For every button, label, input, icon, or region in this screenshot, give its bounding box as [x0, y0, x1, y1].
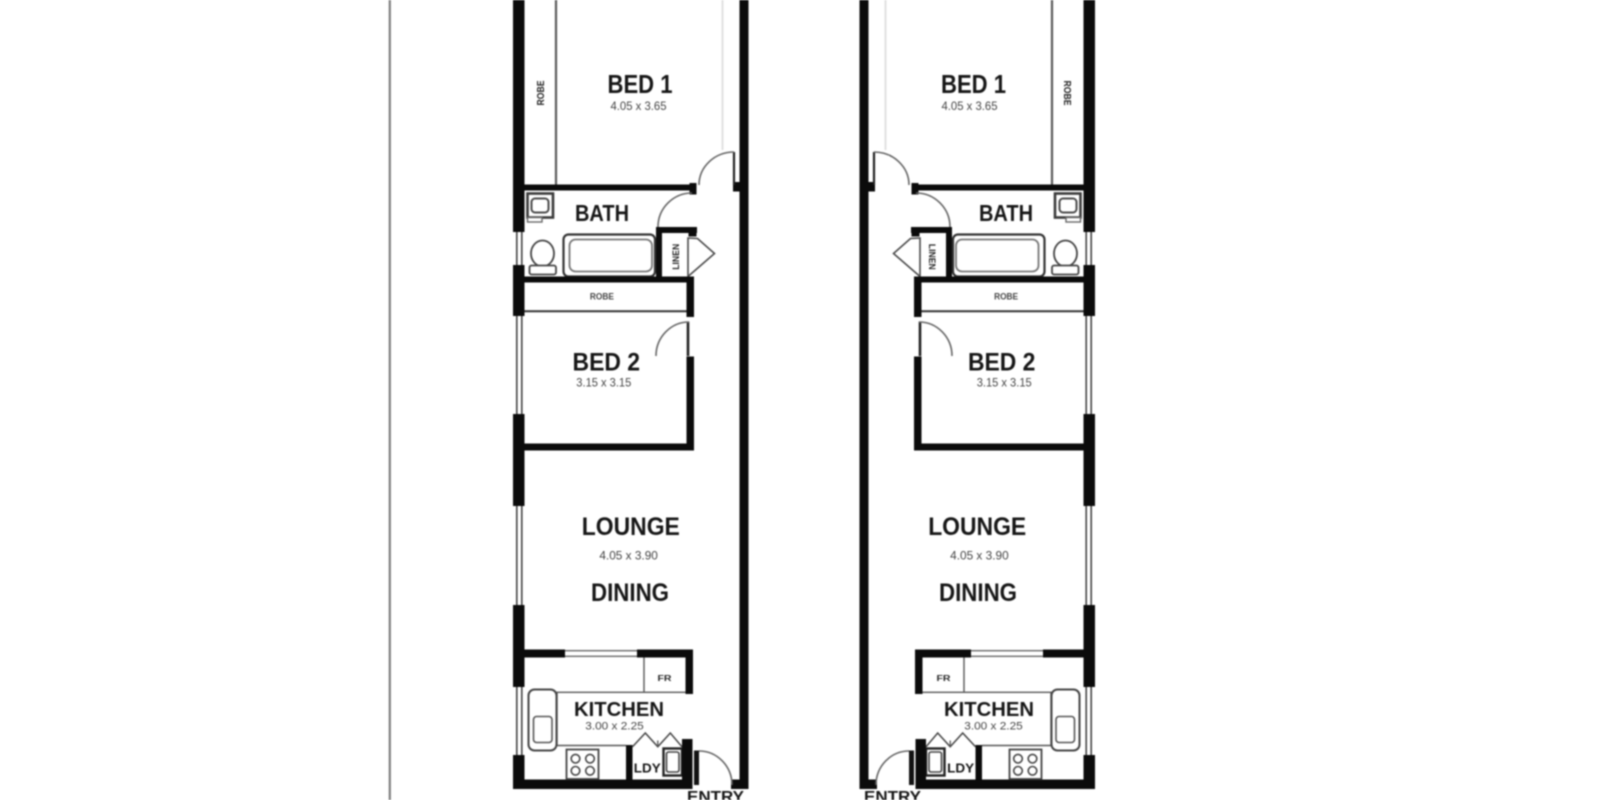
svg-text:LOUNGE: LOUNGE: [928, 513, 1026, 541]
svg-text:LDY: LDY: [947, 761, 974, 776]
svg-text:ROBE: ROBE: [590, 292, 614, 303]
svg-text:DINING: DINING: [591, 579, 669, 607]
svg-text:LOUNGE: LOUNGE: [582, 513, 680, 541]
svg-text:KITCHEN: KITCHEN: [944, 699, 1034, 721]
svg-text:3.15 x 3.15: 3.15 x 3.15: [977, 378, 1032, 390]
svg-text:FR: FR: [937, 674, 951, 683]
svg-text:3.00 x 2.25: 3.00 x 2.25: [964, 721, 1023, 733]
svg-text:4.05 x 3.90: 4.05 x 3.90: [599, 551, 658, 563]
svg-text:ROBE: ROBE: [1061, 81, 1072, 106]
svg-text:4.05 x 3.65: 4.05 x 3.65: [942, 99, 998, 113]
svg-text:KITCHEN: KITCHEN: [574, 699, 664, 721]
svg-text:DINING: DINING: [939, 579, 1017, 607]
svg-text:LINEN: LINEN: [926, 244, 937, 270]
svg-text:LDY: LDY: [634, 761, 661, 776]
svg-text:ROBE: ROBE: [536, 80, 547, 105]
svg-text:ROBE: ROBE: [994, 292, 1018, 303]
svg-text:ENTRY: ENTRY: [864, 789, 922, 800]
svg-text:3.00 x 2.25: 3.00 x 2.25: [585, 721, 644, 733]
svg-text:BED 2: BED 2: [968, 349, 1036, 377]
svg-text:FR: FR: [658, 674, 672, 683]
svg-text:3.15 x 3.15: 3.15 x 3.15: [576, 378, 631, 390]
svg-text:BED 1: BED 1: [941, 69, 1006, 99]
svg-text:4.05 x 3.90: 4.05 x 3.90: [950, 551, 1009, 563]
svg-text:BED 2: BED 2: [573, 349, 641, 377]
svg-text:BED 1: BED 1: [608, 69, 673, 99]
svg-text:4.05 x 3.65: 4.05 x 3.65: [611, 99, 667, 113]
svg-text:ENTRY: ENTRY: [687, 789, 745, 800]
svg-text:BATH: BATH: [979, 200, 1033, 226]
svg-text:LINEN: LINEN: [671, 244, 682, 270]
svg-text:BATH: BATH: [575, 200, 629, 226]
